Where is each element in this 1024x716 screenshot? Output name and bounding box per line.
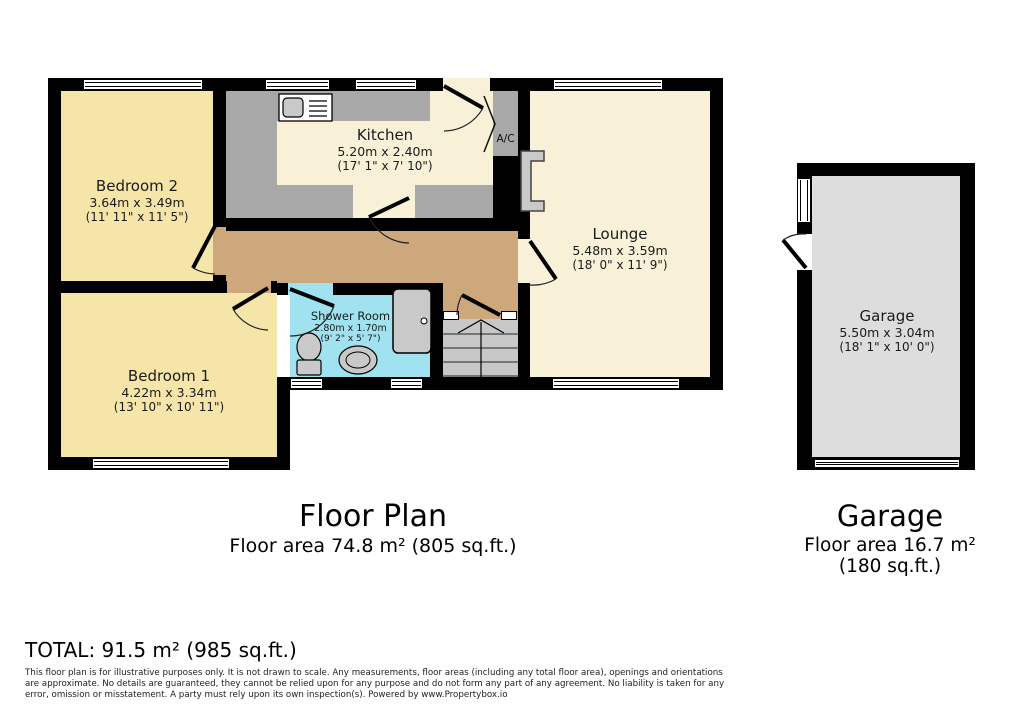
wall bbox=[48, 78, 61, 470]
shower-door-opening bbox=[288, 283, 333, 295]
garage-vehicle-door bbox=[814, 459, 960, 468]
window bbox=[553, 79, 663, 90]
floor-plan-page: A/C bbox=[0, 0, 1024, 716]
wall bbox=[960, 163, 975, 470]
window bbox=[83, 79, 203, 90]
kitchen-entry-floor bbox=[430, 91, 493, 185]
window bbox=[390, 378, 423, 389]
wall bbox=[518, 78, 530, 390]
total-area-text: TOTAL: 91.5 m² (985 sq.ft.) bbox=[25, 638, 297, 662]
wall bbox=[797, 163, 975, 176]
window bbox=[265, 79, 330, 90]
window bbox=[797, 178, 811, 223]
kitchen-floor bbox=[277, 121, 430, 185]
window bbox=[290, 378, 323, 389]
ac-upper-cupboard bbox=[493, 91, 518, 123]
wall bbox=[493, 156, 518, 218]
floor-plan-area: Floor area 74.8 m² (805 sq.ft.) bbox=[173, 535, 573, 557]
disclaimer-text: This floor plan is for illustrative purp… bbox=[25, 668, 727, 701]
wall bbox=[430, 283, 443, 390]
bedroom2-floor bbox=[61, 91, 213, 281]
kitchen-counter-bottom-left bbox=[226, 185, 353, 218]
garage-floor bbox=[812, 176, 962, 459]
wall bbox=[710, 78, 723, 390]
garage-area: Floor area 16.7 m² (180 sq.ft.) bbox=[787, 535, 993, 578]
bedroom1-floor bbox=[61, 293, 277, 457]
stairs-door-jamb bbox=[501, 311, 517, 320]
bedroom1-door-opening bbox=[227, 281, 271, 293]
kitchen-counter-bottom-right bbox=[415, 185, 493, 218]
wall bbox=[226, 218, 518, 231]
lounge-door-opening bbox=[518, 239, 530, 283]
wall bbox=[48, 281, 226, 293]
hallway-floor bbox=[226, 231, 518, 283]
floor-plan-title: Floor Plan bbox=[173, 499, 573, 534]
window bbox=[552, 378, 680, 389]
front-door-opening bbox=[443, 78, 490, 91]
wall bbox=[277, 377, 290, 470]
lounge-floor bbox=[530, 91, 710, 377]
garage-side-door-opening bbox=[797, 234, 812, 270]
window bbox=[355, 79, 417, 90]
window bbox=[92, 458, 230, 469]
shower-room-floor bbox=[290, 295, 430, 377]
garage-title: Garage bbox=[790, 499, 990, 533]
bedroom2-door-opening bbox=[213, 227, 226, 275]
stairs-door-jamb bbox=[443, 311, 459, 320]
ac-closet-label: A/C bbox=[493, 133, 518, 145]
